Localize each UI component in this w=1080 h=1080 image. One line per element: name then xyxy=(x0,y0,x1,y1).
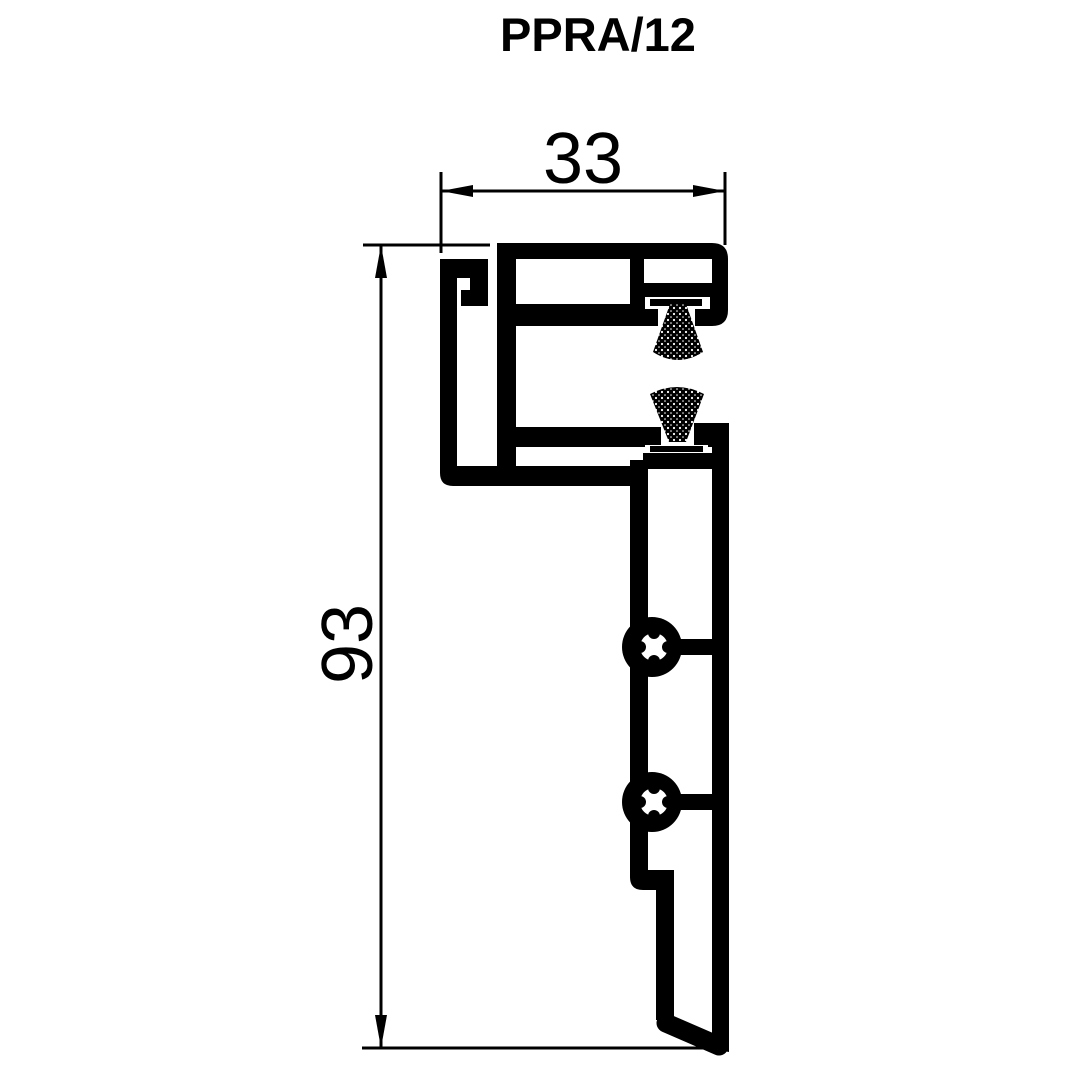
arrowhead-top xyxy=(375,245,387,278)
screw-boss-1 xyxy=(622,617,682,677)
fin-bottom-closure xyxy=(666,1023,719,1046)
channel-bottom-plate xyxy=(516,427,661,447)
dimension-width-label: 33 xyxy=(543,119,623,199)
right-wall xyxy=(712,423,729,1052)
screw-boss-2 xyxy=(622,772,682,832)
left-wall xyxy=(497,243,516,486)
profile-cross-section xyxy=(440,243,729,1052)
arrowhead-right xyxy=(693,185,725,197)
hook-foot xyxy=(461,290,488,306)
technical-drawing: 33 93 PPRA/12 xyxy=(0,0,1080,1080)
dimension-height-label: 93 xyxy=(308,604,388,684)
upper-chamber-left xyxy=(516,259,630,304)
upper-chamber-right xyxy=(644,259,712,283)
arrowhead-bottom xyxy=(375,1015,387,1048)
dimension-width-33: 33 xyxy=(441,119,725,253)
lower-brush-backing-plate xyxy=(650,446,703,452)
drawing-title: PPRA/12 xyxy=(500,8,696,61)
arrowhead-left xyxy=(441,185,473,197)
fin-wall xyxy=(656,870,674,1020)
